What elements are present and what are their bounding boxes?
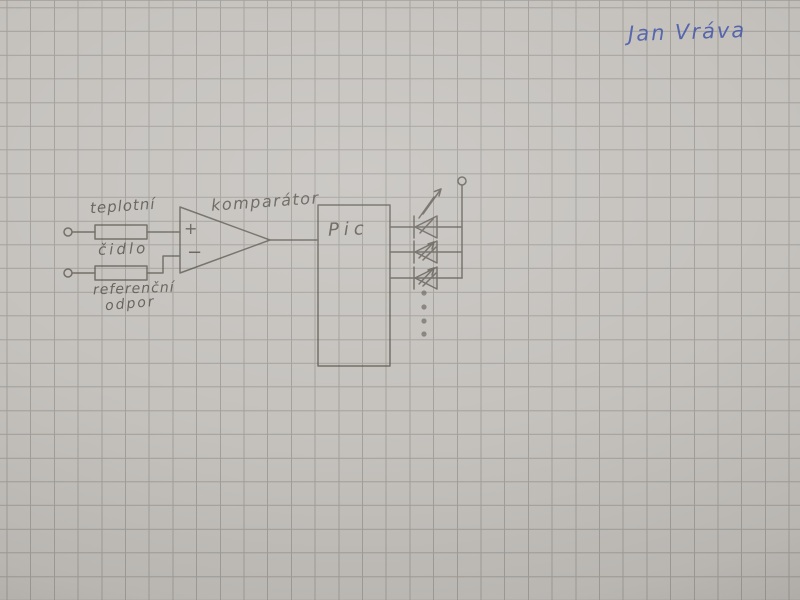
label-sensor-line2: čidlo xyxy=(98,239,149,259)
comparator-plus-input-sign: + xyxy=(184,219,198,238)
led-3-icon xyxy=(414,267,437,289)
resistor-sensor-icon xyxy=(95,225,147,239)
handwritten-signature: Jan Vráva xyxy=(628,18,747,46)
input-terminal-bottom-icon xyxy=(64,269,72,277)
led-2-icon xyxy=(414,241,437,263)
input-terminal-top-icon xyxy=(64,228,72,236)
resistor-reference-icon xyxy=(95,266,147,280)
comparator-minus-input-sign: − xyxy=(187,242,203,263)
label-mcu: Pic xyxy=(328,218,369,240)
graph-paper-photo: teplotní čidlo referenční odpor komparát… xyxy=(0,0,800,600)
comparator-triangle-icon xyxy=(180,207,270,273)
more-outputs-dots-icon xyxy=(421,290,426,336)
led-1-icon xyxy=(414,189,441,238)
wire-reference-to-comparator xyxy=(147,256,180,273)
supply-terminal-icon xyxy=(458,177,466,185)
